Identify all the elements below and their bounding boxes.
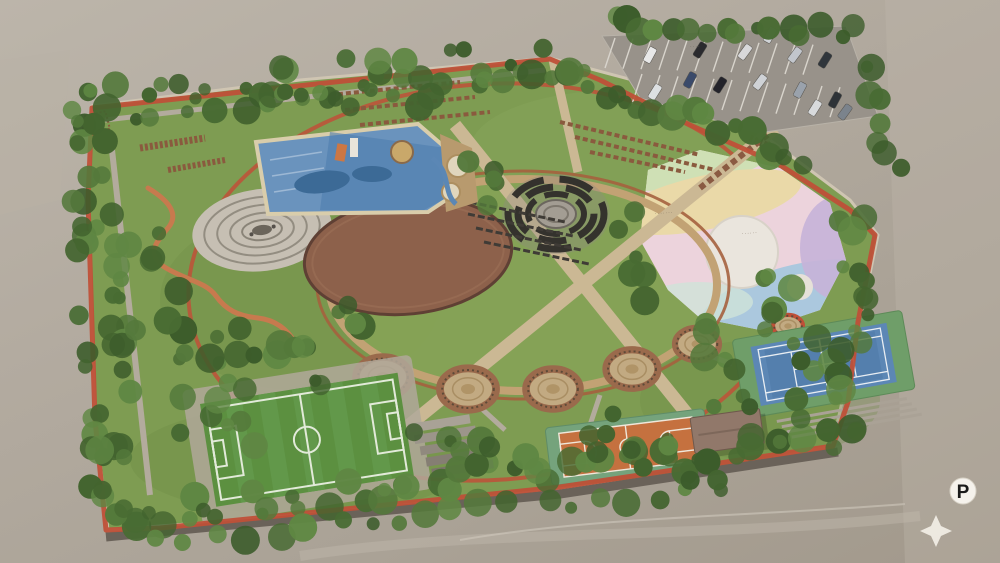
park-masterplan-rendering: ···· ······· ······ P <box>0 0 1000 563</box>
plaza-label-2: ······ <box>742 230 758 237</box>
amphitheater <box>502 174 610 254</box>
water-play-pool <box>256 124 478 214</box>
parking-badge-letter: P <box>957 482 970 503</box>
parking-lot-label: ···· <box>690 44 701 50</box>
parking-badge: P <box>950 478 976 504</box>
